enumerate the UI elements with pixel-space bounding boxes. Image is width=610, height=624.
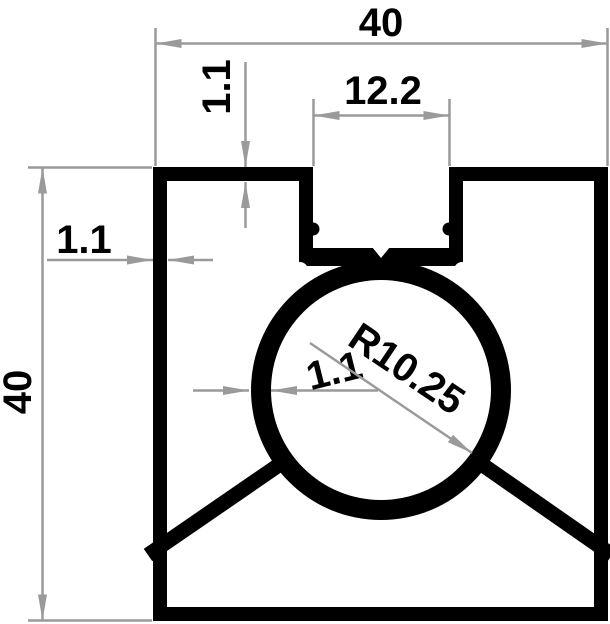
dim-top-wall-label: 1.1	[195, 59, 239, 115]
arrowhead	[38, 168, 47, 194]
arrowhead	[38, 595, 47, 621]
dim-slot-width-label: 12.2	[344, 69, 422, 113]
slot-wall-bump-right	[443, 223, 456, 236]
t-slot-opening	[313, 167, 449, 248]
technical-drawing-canvas: 40 12.2 1.1 40 1.1 1	[0, 0, 610, 624]
slot-wall-bump-left	[307, 223, 320, 236]
dim-overall-width-label: 40	[359, 1, 404, 45]
flute-notch-left	[292, 262, 308, 278]
arrowhead	[424, 111, 450, 120]
dim-side-wall-label: 1.1	[56, 218, 112, 262]
arrowhead	[241, 141, 250, 167]
arrowhead	[314, 111, 340, 120]
profile-cross-section	[148, 167, 610, 621]
arrowhead	[156, 39, 182, 48]
arrowhead	[582, 39, 608, 48]
arrowhead	[127, 256, 153, 265]
profile-drawing: 40 12.2 1.1 40 1.1 1	[0, 0, 610, 624]
dim-slot-width: 12.2	[314, 69, 450, 166]
dim-overall-height-label: 40	[0, 370, 40, 415]
flute-notch-right	[454, 262, 470, 278]
